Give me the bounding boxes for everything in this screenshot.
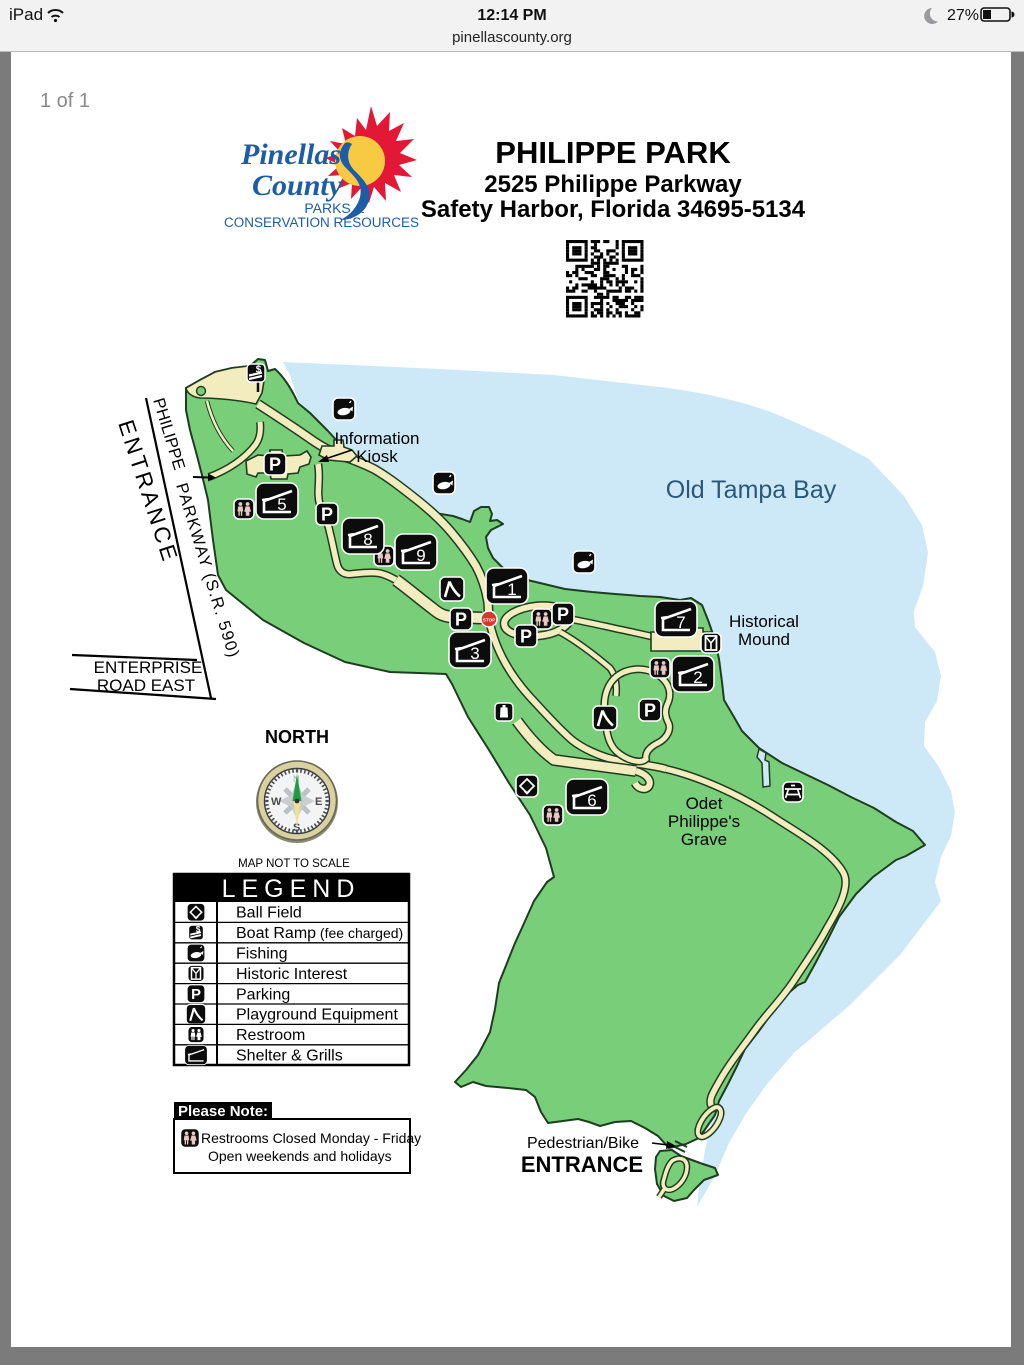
- svg-text:Ball Field: Ball Field: [236, 905, 302, 922]
- svg-text:Kiosk: Kiosk: [356, 447, 398, 466]
- svg-text:Fishing: Fishing: [236, 946, 288, 963]
- svg-text:Shelter & Grills: Shelter & Grills: [236, 1048, 343, 1065]
- svg-text:Parking: Parking: [236, 986, 290, 1003]
- svg-text:W: W: [271, 796, 282, 808]
- svg-text:7: 7: [676, 613, 685, 632]
- svg-text:PHILIPPE PARK: PHILIPPE PARK: [495, 135, 731, 170]
- svg-text:Open weekends and holidays: Open weekends and holidays: [208, 1148, 392, 1164]
- svg-text:Pedestrian/Bike: Pedestrian/Bike: [527, 1135, 639, 1152]
- svg-text:Grave: Grave: [681, 830, 727, 849]
- svg-text:E: E: [315, 796, 322, 808]
- svg-text:9: 9: [416, 546, 425, 565]
- svg-text:Please Note:: Please Note:: [178, 1103, 268, 1120]
- svg-text:Old Tampa Bay: Old Tampa Bay: [666, 476, 837, 504]
- svg-text:MAP NOT TO SCALE: MAP NOT TO SCALE: [238, 858, 350, 870]
- svg-text:Restroom: Restroom: [236, 1027, 305, 1044]
- svg-text:LEGEND: LEGEND: [222, 875, 361, 903]
- svg-text:PARKS &: PARKS &: [304, 200, 364, 216]
- svg-text:1 of 1: 1 of 1: [40, 90, 90, 112]
- svg-text:ENTRANCE: ENTRANCE: [521, 1152, 643, 1177]
- svg-text:ROAD EAST: ROAD EAST: [97, 676, 195, 695]
- svg-text:STOP: STOP: [483, 618, 495, 623]
- svg-text:Pinellas: Pinellas: [240, 138, 341, 171]
- svg-text:3: 3: [470, 644, 479, 663]
- svg-text:pinellascounty.org: pinellascounty.org: [452, 29, 572, 46]
- svg-text:5: 5: [277, 495, 286, 514]
- svg-text:27%: 27%: [947, 7, 979, 24]
- svg-text:iPad: iPad: [9, 5, 43, 24]
- svg-text:ENTERPRISE: ENTERPRISE: [94, 658, 203, 677]
- svg-text:Philippe's: Philippe's: [668, 812, 740, 831]
- svg-text:CONSERVATION RESOURCES: CONSERVATION RESOURCES: [224, 215, 419, 230]
- svg-text:Safety Harbor, Florida 34695-5: Safety Harbor, Florida 34695-5134: [421, 196, 806, 223]
- svg-text:6: 6: [587, 791, 596, 810]
- svg-text:Mound: Mound: [738, 630, 790, 649]
- svg-text:NORTH: NORTH: [265, 727, 329, 747]
- svg-text:County: County: [252, 169, 343, 202]
- svg-text:2525 Philippe Parkway: 2525 Philippe Parkway: [484, 171, 742, 198]
- svg-text:2: 2: [693, 668, 702, 687]
- svg-text:1: 1: [507, 580, 516, 599]
- svg-text:Boat Ramp (fee charged): Boat Ramp (fee charged): [236, 925, 403, 942]
- svg-text:Information: Information: [334, 429, 419, 448]
- svg-text:Playground Equipment: Playground Equipment: [236, 1007, 398, 1024]
- svg-text:8: 8: [363, 530, 372, 549]
- svg-text:Historical: Historical: [729, 612, 799, 631]
- svg-text:Odet: Odet: [686, 794, 723, 813]
- svg-text:Restrooms Closed Monday - Frid: Restrooms Closed Monday - Friday: [201, 1130, 421, 1146]
- svg-text:12:14 PM: 12:14 PM: [477, 7, 546, 24]
- svg-text:Historic Interest: Historic Interest: [236, 966, 348, 983]
